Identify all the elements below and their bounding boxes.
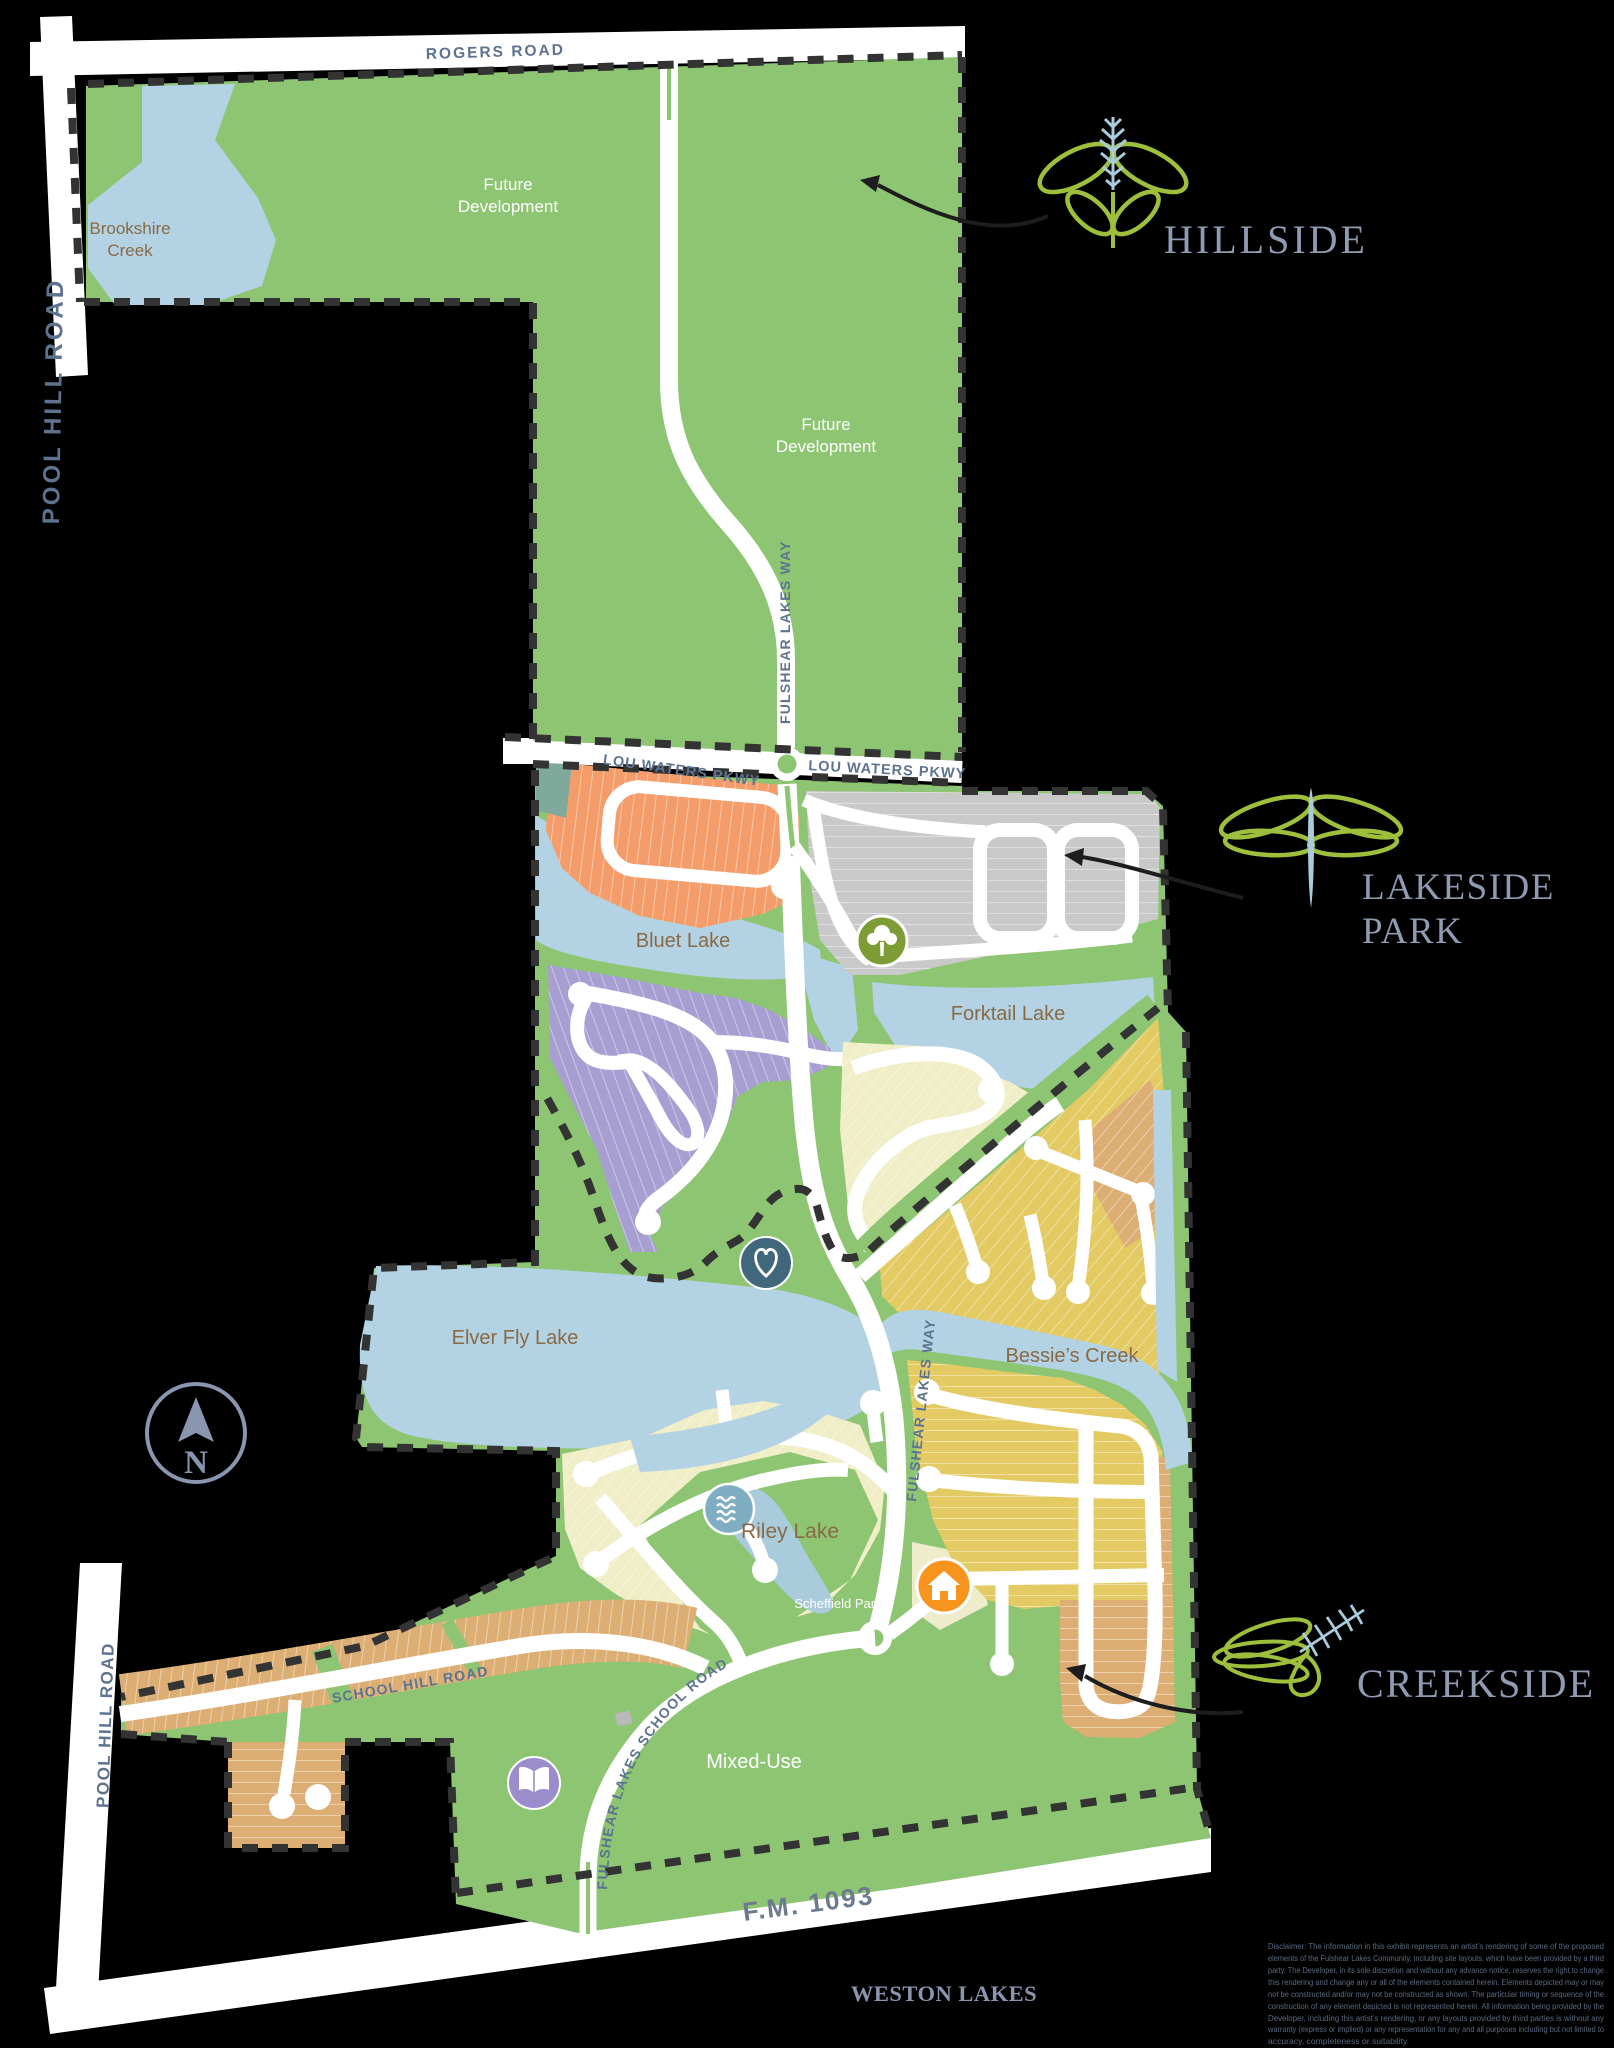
svg-text:this rendering and change any: this rendering and change any or all of …: [1268, 1977, 1605, 1987]
svg-text:Developer, including this arti: Developer, including this artist’s rende…: [1268, 2013, 1605, 2023]
svg-text:PARK: PARK: [1362, 911, 1463, 952]
svg-text:POOL HILL ROAD: POOL HILL ROAD: [38, 278, 69, 525]
svg-text:Brookshire: Brookshire: [89, 219, 170, 238]
svg-text:not be constructed and/or may: not be constructed and/or may not be con…: [1268, 1989, 1604, 1999]
svg-text:Elver Fly Lake: Elver Fly Lake: [452, 1327, 579, 1349]
svg-text:Bluet Lake: Bluet Lake: [636, 930, 731, 952]
svg-text:Disclaimer: The information in: Disclaimer: The information in this exhi…: [1268, 1941, 1604, 1951]
svg-text:construction of any element de: construction of any element depicted is …: [1268, 2001, 1604, 2011]
svg-text:Scheffield Park: Scheffield Park: [794, 1596, 882, 1611]
svg-text:N: N: [184, 1445, 208, 1481]
svg-text:accuracy, completeness or suit: accuracy, completeness or suitability.: [1268, 2036, 1409, 2046]
svg-text:Bessie’s Creek: Bessie’s Creek: [1005, 1345, 1139, 1367]
svg-text:warranty (express or implied): warranty (express or implied) or any rep…: [1267, 2024, 1604, 2034]
svg-text:WESTON LAKES: WESTON LAKES: [851, 1981, 1037, 2006]
svg-text:Mixed-Use: Mixed-Use: [706, 1751, 802, 1773]
svg-text:Future: Future: [801, 415, 850, 434]
svg-text:party. The Developer, in its s: party. The Developer, in its sole discre…: [1268, 1965, 1604, 1975]
svg-text:Riley Lake: Riley Lake: [741, 1520, 839, 1543]
svg-text:Creek: Creek: [107, 241, 153, 260]
svg-text:Development: Development: [776, 437, 876, 456]
svg-text:LAKESIDE: LAKESIDE: [1362, 867, 1555, 908]
svg-text:FULSHEAR LAKES WAY: FULSHEAR LAKES WAY: [777, 540, 793, 724]
svg-text:CREEKSIDE: CREEKSIDE: [1357, 1661, 1595, 1706]
svg-text:Forktail Lake: Forktail Lake: [951, 1003, 1066, 1025]
svg-text:elements of the Fulshear Lakes: elements of the Fulshear Lakes Community…: [1268, 1953, 1604, 1963]
svg-text:Future: Future: [483, 175, 532, 194]
svg-text:Development: Development: [458, 197, 558, 216]
svg-text:HILLSIDE: HILLSIDE: [1164, 217, 1368, 262]
